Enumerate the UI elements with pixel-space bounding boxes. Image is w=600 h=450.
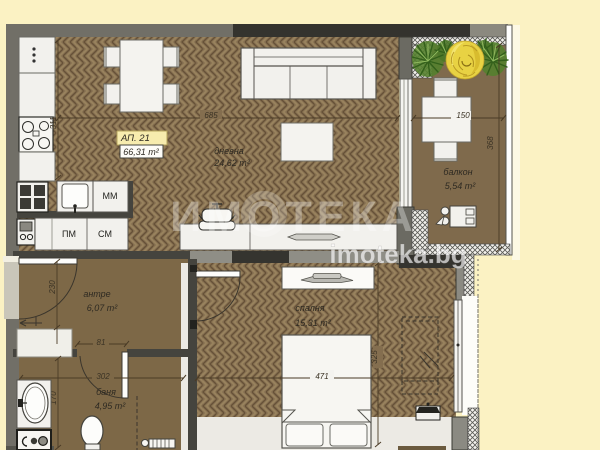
svg-text:368: 368 (486, 136, 495, 150)
svg-text:балкон: балкон (443, 167, 472, 177)
svg-text:спалня: спалня (295, 303, 324, 313)
svg-text:imoteka.bg: imoteka.bg (329, 239, 466, 269)
svg-text:ПМ: ПМ (62, 229, 76, 239)
svg-text:5,54 m²: 5,54 m² (445, 181, 477, 191)
svg-text:баня: баня (96, 387, 116, 397)
svg-text:антре: антре (83, 289, 110, 299)
svg-text:471: 471 (315, 372, 328, 381)
svg-text:685: 685 (204, 111, 218, 120)
svg-text:150: 150 (456, 111, 470, 120)
svg-text:АП. 21: АП. 21 (120, 133, 150, 144)
svg-text:24,62 m²: 24,62 m² (213, 158, 251, 168)
svg-text:325: 325 (370, 350, 379, 364)
svg-text:СМ: СМ (98, 229, 112, 239)
svg-text:302: 302 (96, 372, 110, 381)
svg-text:дневна: дневна (214, 146, 244, 156)
svg-text:4,95 m²: 4,95 m² (95, 401, 127, 411)
svg-text:311: 311 (49, 117, 58, 130)
svg-text:66,31 m²: 66,31 m² (123, 147, 160, 157)
svg-text:ИМОТЕКА: ИМОТЕКА (170, 193, 417, 241)
svg-text:81: 81 (97, 338, 106, 347)
svg-text:ММ: ММ (103, 191, 118, 201)
svg-text:6,07 m²: 6,07 m² (87, 303, 119, 313)
svg-text:15,31 m²: 15,31 m² (295, 318, 332, 328)
svg-text:230: 230 (48, 280, 57, 295)
